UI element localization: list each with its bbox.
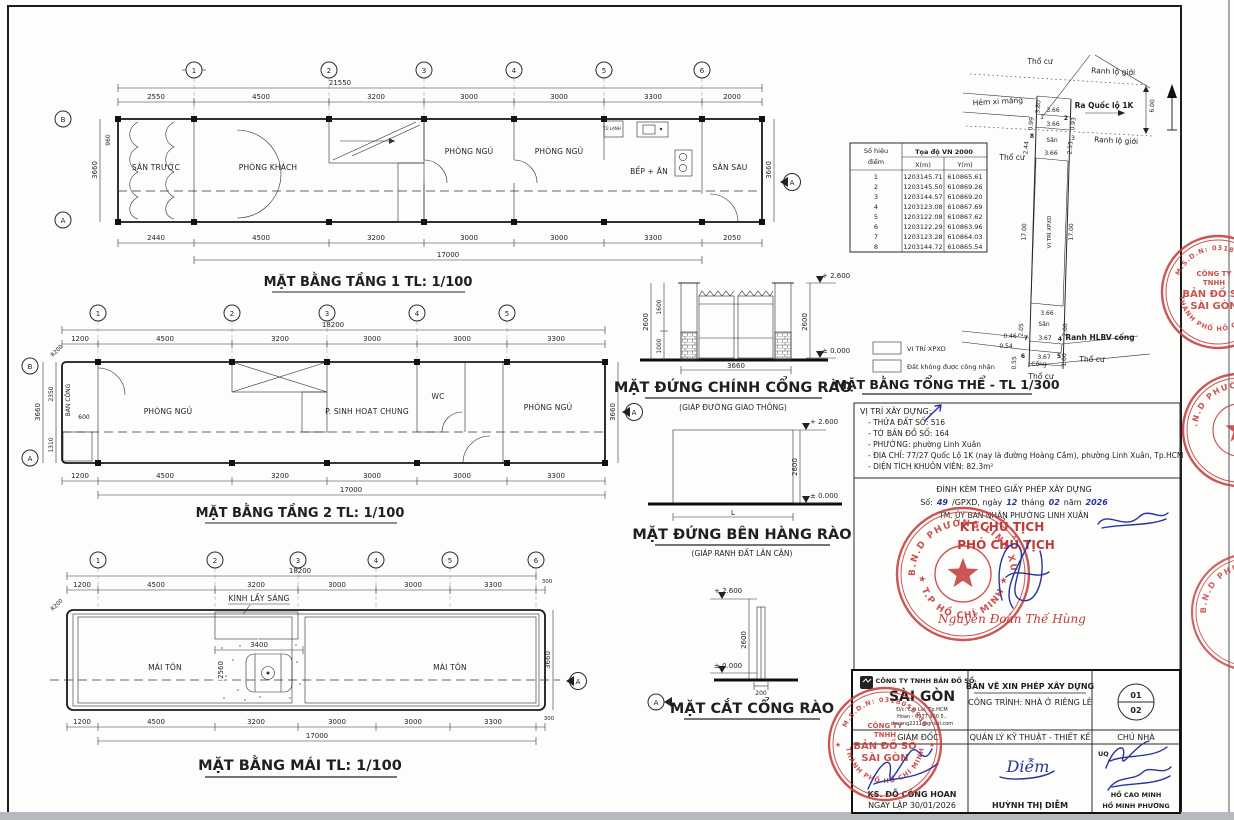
info-heading: VỊ TRÍ XÂY DỰNG: [860, 405, 931, 417]
svg-text:610865.54: 610865.54 [947, 243, 982, 251]
svg-text:SÀI GÒN: SÀI GÒN [861, 751, 908, 764]
info-line: - THỬA ĐẤT SỐ: 516 [868, 417, 945, 427]
svg-text:17.00: 17.00 [1068, 223, 1076, 241]
dim: 200 [755, 690, 767, 697]
dim: 2600 [740, 631, 748, 649]
svg-text:CÔNG TY: CÔNG TY [868, 721, 904, 730]
svg-text:1203145.71: 1203145.71 [903, 173, 942, 181]
dim: 4500 [147, 581, 165, 589]
svg-text:TNHH: TNHH [874, 731, 896, 739]
room-label-balcony: BAN CÔNG [65, 383, 72, 416]
svg-text:U.B.N.D PHƯỜNG LINH XUÂN: U.B.N.D PHƯỜNG LINH XUÂN [0, 0, 1234, 614]
svg-text:A: A [790, 179, 795, 187]
dim: 3300 [484, 718, 502, 726]
svg-text:6: 6 [1021, 353, 1025, 360]
svg-text:610864.03: 610864.03 [947, 233, 982, 241]
grid-label: 4 [374, 557, 379, 565]
svg-text:1203122.08: 1203122.08 [903, 213, 942, 221]
info-line: - ĐỊA CHỈ: 77/27 Quốc Lộ 1K (nay là đườn… [868, 451, 1183, 460]
table-rows: 11203145.71610865.61 21203145.50610869.2… [874, 173, 983, 251]
legend-label: VI TRÍ XPXD [907, 344, 946, 353]
dim: 1600 [656, 299, 663, 314]
roof-title: MẶT BẰNG MÁI TL: 1/100 [198, 755, 402, 774]
grid-label: 5 [448, 557, 452, 565]
svg-text:610869.20: 610869.20 [947, 193, 982, 201]
svg-text:6.00: 6.00 [1149, 99, 1156, 113]
svg-text:3.66: 3.66 [1046, 121, 1060, 128]
owner-name: HỒ CAO MINH [1111, 789, 1162, 799]
svg-text:0.54: 0.54 [999, 343, 1013, 350]
site-plan: Số hiệu điểm Tọa độ VN 2000 X(m) Y(m) 11… [834, 55, 1177, 394]
svg-text:A: A [576, 678, 581, 686]
dim: 2350 [48, 386, 55, 401]
room-label-wc: WC [431, 392, 444, 401]
room-label-back-yard: SÂN SAU [713, 163, 748, 172]
grid-label: 6 [534, 557, 539, 565]
dim: 300 [544, 716, 555, 722]
svg-text:17.00: 17.00 [1021, 223, 1029, 241]
dim: 3200 [247, 581, 265, 589]
permit-line: ĐÍNH KÈM THEO GIẤY PHÉP XÂY DỰNG [936, 483, 1091, 494]
roof-body [50, 604, 560, 710]
section-marker-a: A [566, 673, 587, 690]
room-label-kitchen: BẾP + ĂN [630, 166, 668, 176]
uq-label: UQ [1098, 750, 1109, 758]
site-label: Ranh lộ giới [1091, 66, 1136, 77]
dim: 3300 [547, 472, 565, 480]
svg-text:BẢN ĐỒ SỐ: BẢN ĐỒ SỐ [1182, 285, 1234, 300]
site-label: Ranh lộ giới [1094, 135, 1139, 146]
floor1-plan: 1 2 3 4 5 6 B A 21550 2550 4500 3200 300… [55, 62, 801, 292]
row-bubble-b: B [61, 116, 66, 124]
gate-section-title: MẶT CẮT CỔNG RÀO [670, 697, 834, 717]
roof-dims-bottom: 1200 4500 3200 3000 3000 3300 300 17000 [67, 716, 555, 745]
svg-text:★: ★ [835, 741, 841, 749]
dim: 17000 [306, 732, 328, 740]
grid-label: 1 [192, 67, 196, 75]
floor1-dims-top: 21550 2550 4500 3200 3000 3000 3300 2000 [118, 79, 762, 106]
project-name: CÔNG TRÌNH: NHÀ Ở RIÊNG LẺ [968, 696, 1092, 707]
dim: 4500 [252, 93, 270, 101]
svg-text:8: 8 [874, 243, 878, 251]
dim: 3660 [544, 651, 552, 669]
site-label: Sân [1038, 321, 1049, 328]
dim: 3000 [453, 335, 471, 343]
floor2-dims-bottom: 1200 4500 3200 3000 3000 3300 17000 [62, 472, 605, 499]
roof-label-metal-right: MÁI TÔN [433, 663, 467, 672]
svg-text:3: 3 [874, 193, 878, 201]
fence-side-title: MẶT ĐỨNG BÊN HÀNG RÀO [632, 525, 851, 543]
level-label: + 2.600 [822, 272, 850, 280]
dim: 3200 [247, 718, 265, 726]
svg-text:TNHH: TNHH [1203, 279, 1225, 287]
svg-text:1203144.72: 1203144.72 [903, 243, 942, 251]
dim: 3000 [363, 472, 381, 480]
dim: 3660 [727, 362, 745, 370]
dim: 3000 [404, 581, 422, 589]
svg-text:2: 2 [874, 183, 878, 191]
doc-type: BẢN VẼ XIN PHÉP XÂY DỰNG [966, 680, 1094, 691]
floor2-dims-top: 18200 1200 4500 3200 3000 3000 3300 [62, 321, 605, 348]
dim: 3300 [547, 335, 565, 343]
dim: 3400 [250, 641, 268, 649]
dim: 3660 [765, 161, 773, 179]
site-label: Thổ cư [1026, 57, 1053, 66]
svg-text:CÔNG TY: CÔNG TY [1197, 269, 1233, 278]
blueprint-sheet: 1 2 3 4 5 6 B A 21550 2550 4500 3200 300… [0, 0, 1234, 820]
owner-name: HỒ MINH PHƯƠNG [1102, 800, 1169, 810]
dim: 2050 [723, 234, 741, 242]
grid-label: 3 [296, 557, 300, 565]
dim: 3000 [363, 335, 381, 343]
section-marker-a: A [622, 404, 643, 421]
site-label: Hẻm xi măng [973, 96, 1024, 108]
svg-text:A: A [632, 409, 637, 417]
dim: 3000 [328, 581, 346, 589]
svg-text:SÀI GÒN: SÀI GÒN [1190, 299, 1234, 312]
info-line: - PHƯỜNG: phường Linh Xuân [868, 440, 981, 449]
dim: 1200 [73, 718, 91, 726]
svg-text:2.55: 2.55 [1066, 141, 1074, 155]
qa-signature: Diễm [1006, 757, 1050, 776]
info-line: - DIỆN TÍCH KHUÔN VIÊN: 82.3m² [868, 462, 993, 471]
grid-label: 5 [602, 67, 606, 75]
floor2-plan: 1 2 3 4 5 B A 18200 1200 4500 3200 3000 … [22, 305, 643, 523]
dim: 3660 [609, 403, 617, 421]
dim: 3000 [550, 93, 568, 101]
svg-text:610869.26: 610869.26 [947, 183, 982, 191]
roof-grid-bubbles: 1 2 3 4 5 6 [90, 552, 544, 608]
dim: 600 [78, 414, 90, 421]
dim: 4500 [147, 718, 165, 726]
svg-text:3.66: 3.66 [1040, 310, 1054, 317]
dim: 960 [105, 134, 112, 146]
svg-text:610867.69: 610867.69 [947, 203, 982, 211]
permit-line: TM. ỦY BAN NHÂN PHƯỜNG LINH XUÂN [938, 510, 1089, 520]
grid-label: 2 [230, 310, 234, 318]
dim: 3000 [404, 718, 422, 726]
grid-label: 6 [700, 67, 705, 75]
dim: 4500 [252, 234, 270, 242]
svg-text:1203122.29: 1203122.29 [903, 223, 942, 231]
svg-text:610863.96: 610863.96 [947, 223, 982, 231]
site-title: MẶT BẰNG TỔNG THỂ - TL 1/300 [834, 375, 1059, 392]
sheet-number-bottom: 02 [1130, 706, 1141, 715]
roof-dims-right: 3660 A [544, 610, 587, 710]
grid-label: 4 [512, 67, 517, 75]
room-label-bed2: PHÒNG NGỦ [535, 146, 584, 156]
svg-text:U.B.N.D PHƯỜNG LINH XUÂN: U.B.N.D PHƯỜNG LINH XUÂN [0, 0, 1018, 576]
dim: 2600 [642, 313, 650, 331]
svg-text:★: ★ [929, 741, 935, 749]
svg-text:3.66: 3.66 [1044, 150, 1058, 157]
svg-text:1203145.50: 1203145.50 [903, 183, 942, 191]
gate-front-subtitle: (GIÁP ĐƯỜNG GIAO THÔNG) [679, 403, 787, 412]
site-label: Ra Quốc lộ 1K [1075, 101, 1135, 110]
room-label-front-yard: SÂN TRƯỚC [132, 163, 180, 172]
svg-text:A: A [654, 699, 659, 707]
svg-text:3.80: 3.80 [1034, 100, 1042, 114]
gate-front-elevation: 2600 1600 1000 3660 2600 + 2.600 ± 0.000… [614, 272, 852, 412]
site-label: VI TRÍ XPXD [1046, 216, 1053, 249]
row-bubble-a: A [28, 455, 33, 463]
room-label-common: P. SINH HOẠT CHUNG [325, 407, 409, 416]
dim: 17000 [340, 486, 362, 494]
dim: 21550 [329, 79, 351, 87]
site-label: Cống [1031, 361, 1047, 368]
svg-text:0.55: 0.55 [1011, 356, 1018, 370]
legend-label: Đất không được công nhận [907, 363, 995, 371]
dim: 3000 [550, 234, 568, 242]
site-label: Sân [1046, 137, 1057, 144]
dim: R200 [50, 344, 65, 359]
roof-label-metal-left: MÁI TÔN [148, 663, 182, 672]
level-label: + 2.600 [714, 587, 742, 595]
gate-front-title: MẶT ĐỨNG CHÍNH CỔNG RÀO [614, 376, 852, 396]
permit-number-line: Số:49/GPXD, ngày12tháng02năm2026 [920, 497, 1108, 507]
drawing-canvas: 1 2 3 4 5 6 B A 21550 2550 4500 3200 300… [0, 0, 1234, 820]
dim: 2550 [147, 93, 165, 101]
dim: 3200 [367, 234, 385, 242]
svg-text:610867.62: 610867.62 [947, 213, 982, 221]
location-info-box: VỊ TRÍ XÂY DỰNG: - THỬA ĐẤT SỐ: 516 - TỜ… [854, 403, 1183, 478]
fence-side-subtitle: (GIÁP RANH ĐẤT LÂN CẬN) [692, 548, 793, 558]
coordinate-table: Số hiệu điểm Tọa độ VN 2000 X(m) Y(m) 11… [850, 143, 987, 252]
floor1-grid-bubbles: 1 2 3 4 5 6 B A [55, 62, 710, 228]
dim: L [731, 509, 735, 517]
roof-dims-top: 18200 1200 4500 3200 3000 3000 3300 300 [67, 567, 553, 594]
dim: 1200 [71, 335, 89, 343]
room-label-bed1: PHÒNG NGỦ [144, 406, 193, 416]
svg-text:2.00: 2.00 [1062, 323, 1069, 337]
svg-text:6: 6 [874, 223, 878, 231]
gate-section: + 2.600 2600 ± 0.000 200 ± 0.000 A MẶT C… [648, 587, 834, 719]
table-header: Y(m) [956, 161, 972, 169]
dim: 300 [542, 579, 553, 585]
svg-text:0.93: 0.93 [1069, 117, 1077, 131]
grid-label: 1 [96, 557, 100, 565]
section-marker-a: A [780, 174, 801, 191]
site-label: Thổ cư [1078, 355, 1105, 364]
table-header: Số hiệu [864, 147, 888, 155]
grid-label: 1 [96, 310, 100, 318]
doc-cell: BẢN VẼ XIN PHÉP XÂY DỰNG CÔNG TRÌNH: NHÀ… [966, 680, 1094, 707]
qa-name: HUỲNH THỊ DIỄM [992, 798, 1068, 810]
svg-text:1203123.28: 1203123.28 [903, 233, 942, 241]
svg-text:3.67: 3.67 [1038, 335, 1052, 342]
approval-initials [1098, 513, 1168, 528]
floor1-title: MẶT BẰNG TẦNG 1 TL: 1/100 [264, 272, 473, 290]
table-header: điểm [868, 157, 884, 166]
star-icon [948, 558, 979, 587]
pt: 1 [1040, 114, 1044, 121]
dim: 3300 [644, 234, 662, 242]
dim: 1000 [656, 338, 663, 353]
svg-text:1203144.57: 1203144.57 [903, 193, 942, 201]
svg-text:2.44: 2.44 [1022, 141, 1030, 155]
dim: 3000 [460, 234, 478, 242]
grid-label: 3 [422, 67, 426, 75]
svg-text:0.46: 0.46 [1003, 333, 1017, 340]
dim: 2000 [723, 93, 741, 101]
roof-plan: 1 2 3 4 5 6 18200 1200 4500 3200 3000 30… [50, 552, 587, 777]
dim: 17000 [437, 251, 459, 259]
dim: 3000 [460, 93, 478, 101]
dim: 4500 [156, 472, 174, 480]
dim: 3300 [644, 93, 662, 101]
svg-text:0.99: 0.99 [1027, 117, 1035, 131]
room-label-bed2: PHÒNG NGỦ [524, 402, 573, 412]
room-label-living: PHÒNG KHÁCH [239, 163, 298, 172]
svg-text:3: 3 [1071, 135, 1075, 142]
permit-box: ĐÍNH KÈM THEO GIẤY PHÉP XÂY DỰNG Số:49/G… [854, 478, 1180, 670]
room-label-bed1: PHÒNG NGỦ [445, 146, 494, 156]
svg-text:8: 8 [1030, 133, 1034, 140]
level-label: + 2.600 [810, 418, 838, 426]
dim: 3200 [271, 472, 289, 480]
grid-label: 5 [505, 310, 509, 318]
dim: 18200 [289, 567, 311, 575]
svg-text:7: 7 [874, 233, 878, 241]
company-logo-icon [860, 676, 873, 689]
role-header: QUẢN LÝ KỸ THUẬT - THIẾT KẾ [970, 731, 1092, 743]
dim: 3000 [328, 718, 346, 726]
svg-text:3.67: 3.67 [1037, 354, 1051, 361]
table-header: X(m) [915, 161, 931, 169]
roof-label-skylight: KÍNH LẤY SÁNG [228, 593, 289, 603]
edge-company-stamp: M.S.D.N: 0318055936 THÀNH PHỐ HỒ CHÍ MIN… [1162, 236, 1234, 348]
dim: 18200 [322, 321, 344, 329]
floor1-dims-bottom: 2440 4500 3200 3000 3000 3300 2050 17000 [118, 234, 762, 264]
sheet-number-cell: 01 02 [1118, 684, 1154, 720]
floor1-dims-sides: 3660 960 3660 A [91, 119, 801, 222]
owner-signature-1 [1106, 741, 1167, 768]
dim: 3300 [484, 581, 502, 589]
sheet-number-top: 01 [1130, 691, 1142, 700]
floor2-title: MẶT BẰNG TẦNG 2 TL: 1/100 [196, 503, 405, 521]
level-label: ± 0.000 [822, 347, 850, 355]
svg-text:7: 7 [1024, 335, 1028, 342]
dim: R200 [50, 598, 65, 613]
svg-text:4: 4 [874, 203, 878, 211]
dim: 3660 [34, 403, 42, 421]
row-bubble-a: A [61, 217, 66, 225]
dim: 3000 [453, 472, 471, 480]
site-label: Ranh HLBV cống [1065, 333, 1134, 342]
dim: 2600 [801, 313, 809, 331]
svg-text:610865.61: 610865.61 [947, 173, 982, 181]
svg-text:5: 5 [874, 213, 878, 221]
dim: 2560 [217, 661, 225, 679]
site-legend: VI TRÍ XPXD Đất không được công nhận [873, 342, 995, 372]
dim: 2600 [791, 458, 799, 476]
grid-label: 3 [325, 310, 329, 318]
svg-text:3.66: 3.66 [1046, 107, 1060, 114]
dim: 2440 [147, 234, 165, 242]
fence-side-elevation: 2600 + 2.600 ± 0.000 L MẶT ĐỨNG BÊN HÀNG… [632, 418, 851, 558]
row-bubble-b: B [28, 363, 33, 371]
grid-label: 4 [415, 310, 420, 318]
svg-text:1: 1 [874, 173, 878, 181]
section-marker-a: ± 0.000 A [648, 694, 672, 710]
level-label: ± 0.000 [810, 492, 838, 500]
dim: 1200 [73, 581, 91, 589]
dim: 1310 [48, 437, 55, 452]
owner-signature-2 [1108, 767, 1171, 790]
svg-text:1203123.08: 1203123.08 [903, 203, 942, 211]
dim: 3200 [367, 93, 385, 101]
dim: 1200 [71, 472, 89, 480]
dim: 4500 [156, 335, 174, 343]
fridge-label: TỦ LẠNH [602, 126, 621, 131]
grid-label: 2 [327, 67, 331, 75]
svg-text:4: 4 [1058, 336, 1062, 343]
grid-label: 2 [213, 557, 217, 565]
table-header: Tọa độ VN 2000 [915, 148, 973, 156]
north-arrow-icon [1167, 84, 1177, 130]
info-line: - TỜ BẢN ĐỒ SỐ: 164 [868, 428, 949, 438]
dim: 3200 [271, 335, 289, 343]
dim: 3660 [91, 161, 99, 179]
role-header: CHỦ NHÀ [1117, 731, 1155, 742]
svg-text:2: 2 [1064, 115, 1068, 122]
floor2-grid-bubbles: 1 2 3 4 5 B A [22, 305, 515, 466]
svg-text:1.00: 1.00 [1061, 353, 1068, 367]
company-name: CÔNG TY TNHH BẢN ĐỒ SỐ [876, 675, 975, 685]
